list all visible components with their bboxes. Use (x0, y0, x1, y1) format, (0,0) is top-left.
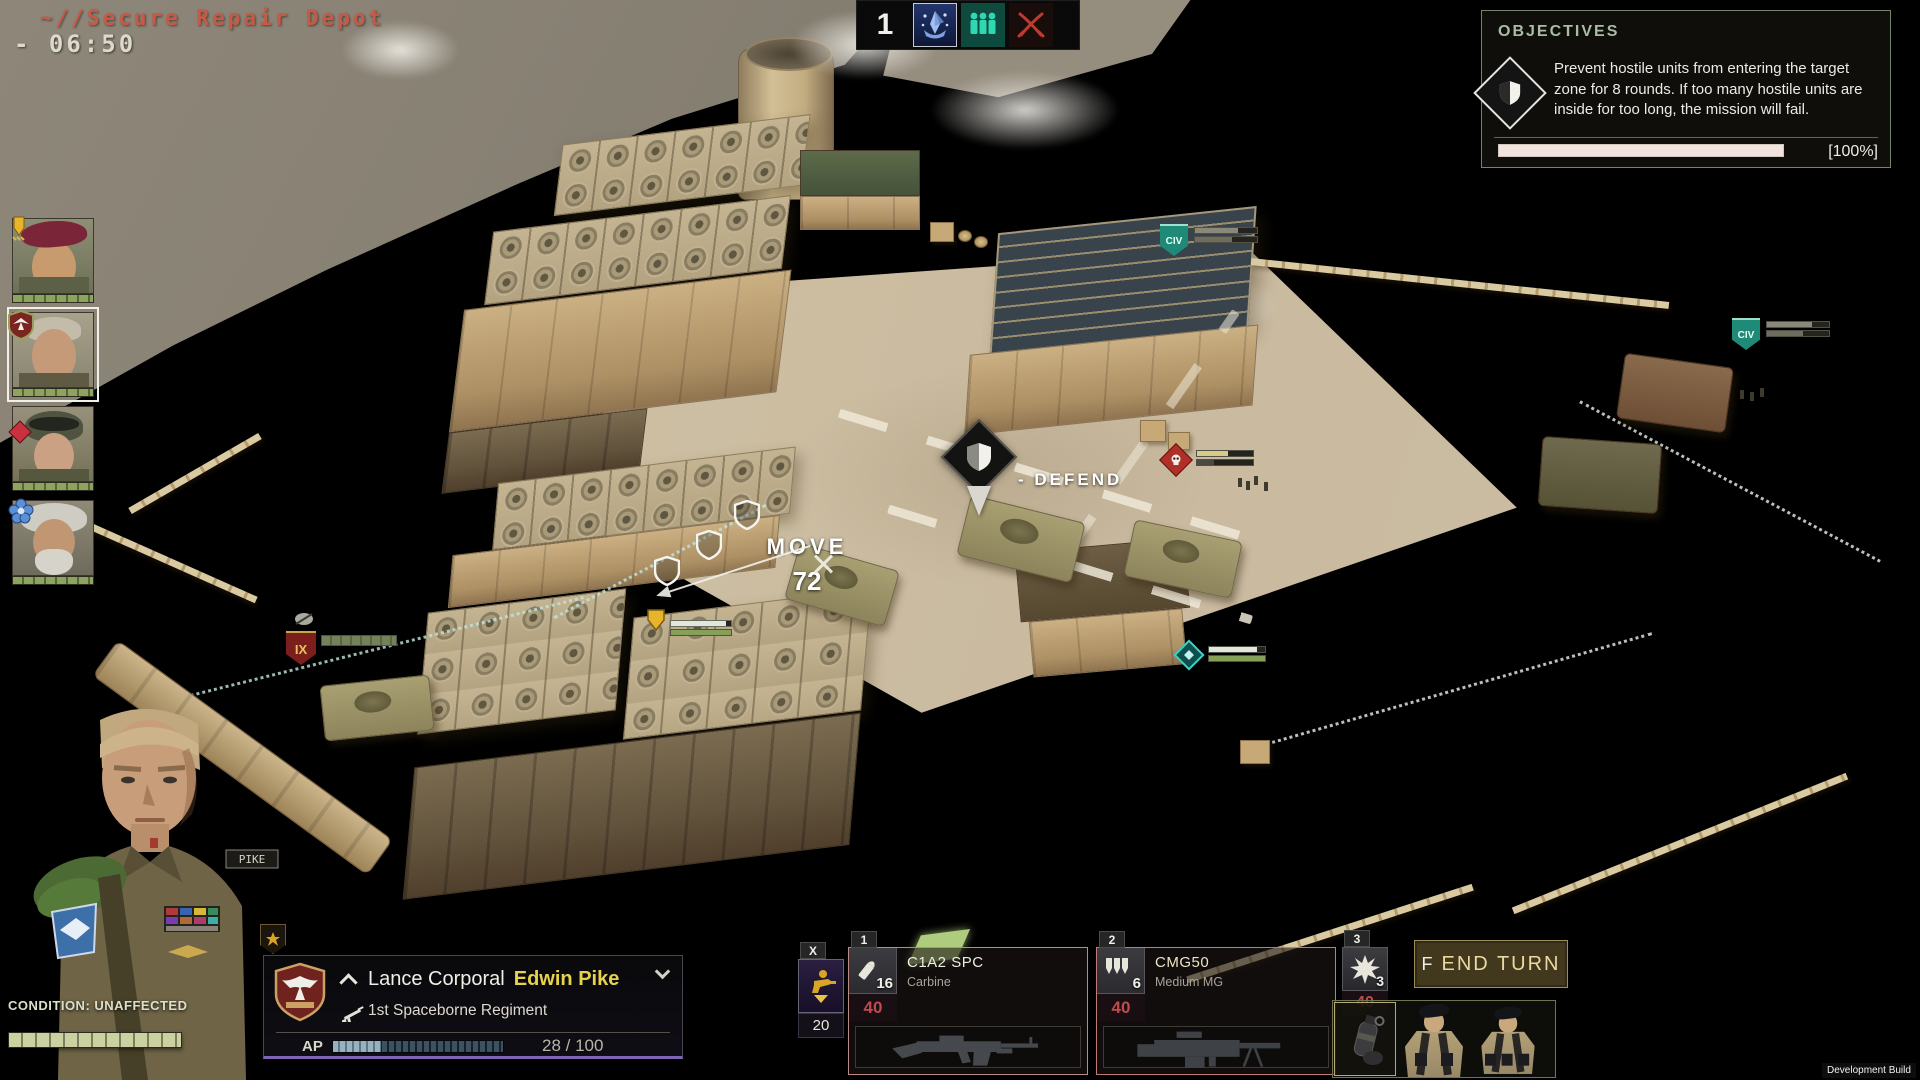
overwatch-ability-button[interactable]: X 20 (798, 959, 844, 1038)
ally-diamond-marker[interactable] (1178, 644, 1200, 666)
game-screen: - DEFEND MOVE 72 (0, 0, 1920, 1080)
soldier-name: Edwin Pike (514, 968, 620, 990)
turn-panel: 1 (856, 0, 1080, 50)
doll-torso (1405, 1031, 1463, 1077)
civ-label: CIV (1738, 330, 1755, 341)
selected-unit-marker[interactable] (644, 608, 668, 641)
unit-bars (670, 620, 732, 636)
not-spotted-eye-icon (294, 612, 314, 626)
collapse-chevron-icon[interactable] (339, 973, 357, 991)
move-cost: 72 (752, 566, 862, 597)
hostile-diamond-icon (1159, 443, 1193, 477)
doll-pouch (1415, 1053, 1427, 1066)
red-diamond-badge (8, 420, 32, 444)
ap-bar (332, 1040, 504, 1053)
weapon-name: CMG50 (1155, 954, 1209, 971)
grenade-hotkey: 3 (1344, 930, 1370, 947)
selected-soldier-panel: Lance CorporalEdwin Pike 1st Spaceborne … (263, 955, 683, 1059)
grenade-item-box[interactable] (1334, 1002, 1396, 1076)
shed-wall (800, 196, 920, 230)
unit-hp-bar (321, 635, 397, 646)
civ-shield-icon: CIV (1160, 224, 1188, 256)
turn-number: 1 (857, 8, 913, 42)
doll-pouch (1485, 1054, 1496, 1066)
unit-bars (1196, 450, 1254, 466)
gear-panel (1332, 1000, 1556, 1078)
defend-marker[interactable]: - DEFEND (952, 430, 1006, 516)
squad-member-2-selected[interactable] (12, 312, 94, 397)
objectives-panel: OBJECTIVES Prevent hostile units from en… (1481, 10, 1891, 168)
ally-diamond-icon (1173, 639, 1204, 670)
regiment-label: 1st Spaceborne Regiment (368, 1002, 547, 1020)
marker-pointer (967, 486, 991, 516)
building-wall-lower (403, 713, 861, 900)
objectives-title: OBJECTIVES (1498, 23, 1619, 41)
visor (29, 417, 79, 431)
ap-label: AP (302, 1038, 323, 1055)
rank-text: Lance Corporal (368, 968, 505, 990)
crate (1240, 740, 1270, 764)
doll-pouch (1518, 1054, 1529, 1066)
burst-arrows-icon (1101, 956, 1131, 982)
squad-member-4[interactable] (12, 500, 94, 585)
perimeter-wall (90, 524, 257, 604)
barrel (974, 236, 988, 248)
mission-timer: - 06:50 (14, 30, 136, 58)
unit-bars (1194, 227, 1258, 243)
overwatch-soldier-icon (798, 959, 844, 1013)
uniform (19, 277, 89, 294)
grenade-count: 3 (1376, 973, 1384, 989)
defend-shield-icon (1473, 56, 1547, 130)
hostile-skull-marker[interactable] (1164, 448, 1188, 472)
squad-roster: SU SU (12, 218, 96, 594)
supply-shed (800, 150, 920, 230)
explosion-icon: 3 (1342, 947, 1388, 991)
crate (930, 222, 954, 242)
hp-bar (12, 294, 94, 303)
civilian-marker[interactable]: CIV (1732, 318, 1830, 350)
defend-shield-icon (941, 419, 1017, 495)
enemy-label: IX (295, 642, 307, 657)
end-turn-hotkey: F (1422, 954, 1433, 975)
civilians-icon (961, 3, 1005, 47)
dev-build-watermark: Development Build (1822, 1063, 1916, 1078)
hp-bar (12, 482, 94, 491)
commander-portrait: PIKE (0, 690, 300, 1080)
defend-label: - DEFEND (1018, 470, 1122, 490)
expand-chevron-icon[interactable] (655, 964, 671, 980)
objective-progress-label: [100%] (1828, 143, 1878, 161)
civ-shield-icon: CIV (1732, 318, 1760, 350)
hp-bar (12, 388, 94, 397)
cover-shield-icon (654, 556, 680, 586)
doll-beret (1418, 1002, 1449, 1019)
hp-bar (12, 576, 94, 585)
unit-bars (1766, 321, 1830, 337)
civ-label: CIV (1166, 236, 1183, 247)
shed-tarp (800, 150, 920, 196)
maroon-beret (20, 218, 88, 250)
enemy-ix-marker[interactable]: IX (286, 612, 397, 665)
ammo-count: 16 (876, 975, 893, 992)
doll-pouch (1441, 1053, 1453, 1066)
grenade-icon (1345, 1010, 1385, 1068)
doll-beret (1494, 1005, 1523, 1020)
weapon-slot-2[interactable]: 2 6 40 CMG50 Medium MG (1096, 947, 1336, 1075)
faction-emblem-icon (913, 3, 957, 47)
end-turn-button[interactable]: F END TURN (1414, 940, 1568, 988)
ammo-tile: 16 (849, 948, 897, 994)
beard (35, 549, 73, 575)
objective-progress-bar (1498, 144, 1784, 157)
squad-member-1[interactable] (12, 218, 94, 303)
weapon-name: C1A2 SPC (907, 954, 984, 971)
jump-arrow-badge (8, 216, 30, 244)
ribbon-rack (164, 906, 220, 932)
weapon-1-hotkey: 1 (851, 931, 877, 948)
perimeter-wall (1512, 773, 1848, 914)
crossed-sabers-combat-icon (1009, 3, 1053, 47)
perimeter-wall (1251, 258, 1669, 309)
crate (1140, 420, 1166, 442)
mission-title: ~//Secure Repair Depot (40, 6, 384, 30)
objective-description: Prevent hostile units from entering the … (1554, 59, 1876, 121)
commander-hp-bar (8, 1032, 182, 1048)
reserve-ammo: 40 (1097, 994, 1145, 1021)
smoke-puff (930, 70, 1120, 150)
building-lower-workshop (371, 428, 944, 922)
ability-cost: 20 (798, 1013, 844, 1038)
zone-boundary (1248, 632, 1653, 751)
regiment-eagle-badge (274, 962, 326, 1022)
cover-shield-icon (696, 530, 722, 560)
soldier-outfit-figure (1397, 1001, 1471, 1077)
shack-wall (1029, 608, 1187, 677)
uniform-nametag: PIKE (239, 853, 266, 866)
rusty-truck[interactable] (1616, 353, 1734, 434)
ap-value: 28 / 100 (542, 1036, 603, 1056)
weapon-type: Medium MG (1155, 975, 1223, 989)
unit-bars (1208, 646, 1266, 662)
cover-shield-icon (734, 500, 760, 530)
squad-member-3[interactable]: SU SU (12, 406, 94, 491)
ammo-tile: 6 (1097, 948, 1145, 994)
soldier-rank: Lance CorporalEdwin Pike (368, 968, 619, 991)
apc-vehicle[interactable] (319, 674, 434, 741)
spaceborne-eagle-badge (8, 310, 34, 340)
infantry-dots (1238, 478, 1242, 487)
move-indicator[interactable]: MOVE 72 (752, 534, 862, 597)
weapon-type: Carbine (907, 975, 951, 989)
ability-hotkey: X (800, 942, 826, 959)
end-turn-label: END TURN (1442, 953, 1561, 976)
civilian-marker[interactable]: CIV (1160, 224, 1258, 256)
uniform (19, 373, 89, 388)
rifle-icon (342, 1004, 366, 1022)
blue-flower-badge (8, 498, 34, 524)
ammo-count: 6 (1133, 975, 1141, 992)
weapon-2-hotkey: 2 (1099, 931, 1125, 948)
infantry-dots (1740, 390, 1744, 399)
condition-label: CONDITION: UNAFFECTED (8, 998, 188, 1013)
avatar (12, 406, 94, 482)
selection-arrow-icon (644, 608, 668, 636)
uniform (19, 469, 89, 482)
soldier-outfit-figure (1474, 1004, 1542, 1074)
barrel (958, 230, 972, 242)
weapon-silhouette (855, 1026, 1081, 1068)
reserve-ammo: 40 (849, 994, 897, 1021)
doll-pouch (1502, 1054, 1513, 1066)
cargo-truck[interactable] (1538, 436, 1663, 514)
enemy-shield-icon: IX (286, 631, 316, 665)
path-cross-marker (812, 552, 834, 574)
divider (1494, 137, 1878, 138)
weapon-silhouette (1103, 1026, 1329, 1068)
weapon-slot-1[interactable]: 1 16 40 C1A2 SPC Carbine (848, 947, 1088, 1075)
perimeter-wall (128, 433, 261, 514)
divider (276, 1032, 670, 1033)
